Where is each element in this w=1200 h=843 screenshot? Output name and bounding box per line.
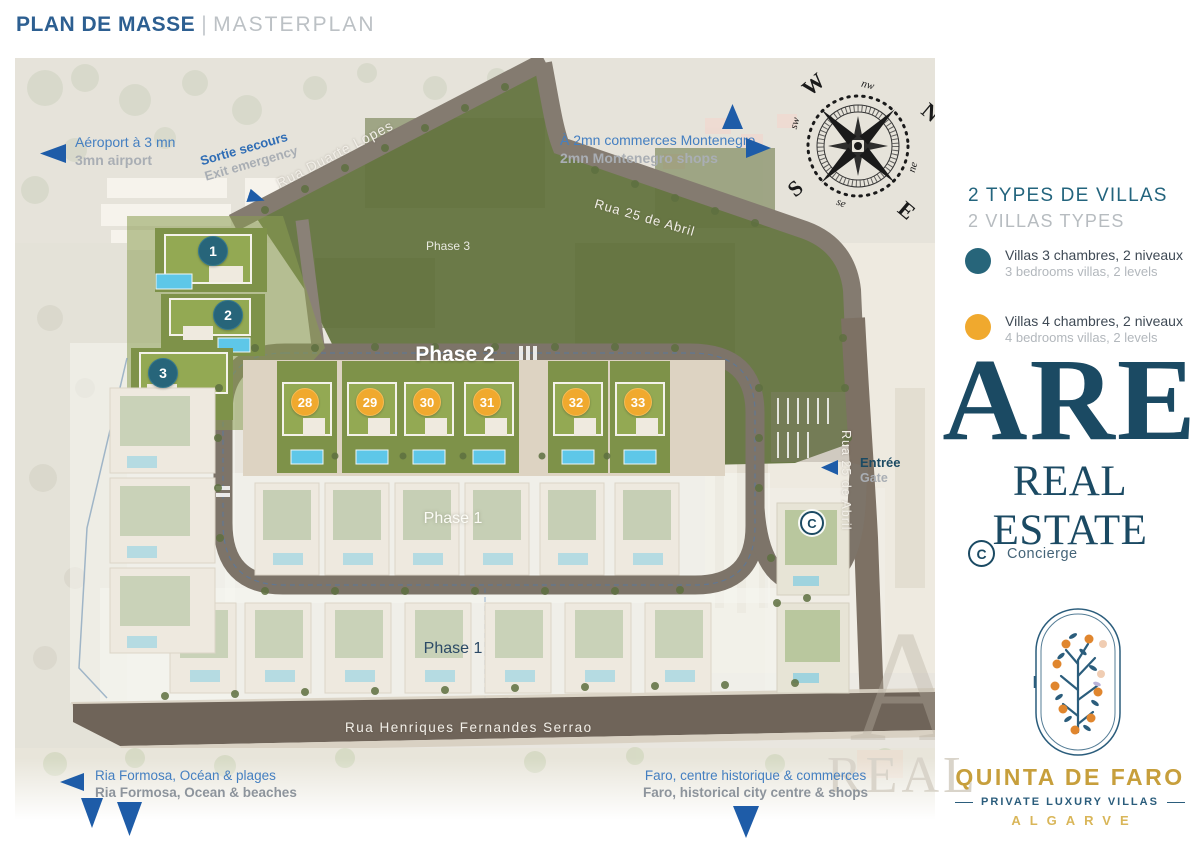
- villa-marker-3: 3: [148, 358, 178, 388]
- legend-4bed-fr: Villas 4 chambres, 2 niveaux: [1005, 312, 1183, 330]
- masterplan-map: A W N S E nw sw ne se Rua Duarte Lopes R…: [15, 58, 935, 820]
- faro-label-fr: Faro, centre historique & commerces: [643, 768, 868, 785]
- ria-label-fr: Ria Formosa, Océan & plages: [95, 768, 297, 785]
- concierge-circle-icon: C: [968, 540, 995, 567]
- villa-marker-33: 33: [624, 388, 652, 416]
- legend-sidebar: 2 TYPES DE VILLAS 2 VILLAS TYPES Villas …: [940, 0, 1200, 843]
- entrance-poi: Entrée Gate: [860, 455, 900, 487]
- site-plan-graphic: A W N S E nw sw ne se: [15, 58, 935, 820]
- faro-arrow-down-icon: [733, 806, 759, 838]
- teal-villa-dot-icon: [965, 248, 991, 274]
- entrance-label-fr: Entrée: [860, 455, 900, 471]
- tagline-text: PRIVATE LUXURY VILLAS: [981, 796, 1159, 808]
- villa-marker-28: 28: [291, 388, 319, 416]
- villa-marker-2: 2: [213, 300, 243, 330]
- phase1-upper-label: Phase 1: [413, 510, 493, 528]
- villa-types-title-fr: 2 TYPES DE VILLAS: [968, 185, 1168, 207]
- legend-3bed-fr: Villas 3 chambres, 2 niveaux: [1005, 246, 1183, 264]
- villa-marker-29: 29: [356, 388, 384, 416]
- villa-marker-1: 1: [198, 236, 228, 266]
- entrance-label-en: Gate: [860, 471, 900, 487]
- villa-marker-31: 31: [473, 388, 501, 416]
- faro-poi: Faro, centre historique & commerces Faro…: [643, 768, 868, 802]
- concierge-label: Concierge: [1007, 546, 1078, 562]
- villa-types-title-en: 2 VILLAS TYPES: [968, 211, 1125, 232]
- ria-label-en: Ria Formosa, Ocean & beaches: [95, 785, 297, 802]
- road-label-serrao: Rua Henriques Fernandes Serrao: [345, 720, 593, 735]
- phase2-label: Phase 2: [400, 343, 510, 367]
- title-separator: |: [195, 13, 213, 36]
- airport-label-fr: Aéroport à 3 mn: [75, 134, 175, 152]
- legend-item-3bed: Villas 3 chambres, 2 niveaux 3 bedrooms …: [965, 246, 1183, 281]
- concierge-map-marker: C: [800, 511, 824, 535]
- page-title-en: MASTERPLAN: [213, 13, 375, 36]
- are-acronym: ARE: [940, 346, 1200, 455]
- phase3-label: Phase 3: [413, 239, 483, 253]
- shops-label-fr: À 2mn commerces Montenegro: [560, 132, 755, 150]
- page-title-fr: PLAN DE MASSE: [16, 13, 195, 36]
- airport-poi: Aéroport à 3 mn 3mn airport: [75, 134, 175, 169]
- concierge-legend: C Concierge: [968, 540, 1078, 567]
- quinta-de-faro-tagline: PRIVATE LUXURY VILLAS: [940, 796, 1200, 808]
- faro-label-en: Faro, historical city centre & shops: [643, 785, 868, 802]
- are-brand-logo: ARE REAL ESTATE: [940, 346, 1200, 555]
- tagline-dash-right: [1167, 802, 1185, 803]
- villa-marker-30: 30: [413, 388, 441, 416]
- phase2-plots: [243, 360, 725, 476]
- villa-marker-32: 32: [562, 388, 590, 416]
- road-label-25-abril-side: Rua 25 de Abril: [839, 430, 853, 530]
- shops-poi: À 2mn commerces Montenegro 2mn Montenegr…: [560, 132, 755, 167]
- quinta-de-faro-name: QUINTA DE FARO: [940, 764, 1200, 791]
- phase1-lower-label: Phase 1: [413, 640, 493, 658]
- quinta-de-faro-emblem: [1033, 606, 1123, 758]
- legend-3bed-en: 3 bedrooms villas, 2 levels: [1005, 264, 1183, 281]
- airport-label-en: 3mn airport: [75, 152, 175, 170]
- page-header: PLAN DE MASSE|MASTERPLAN: [16, 13, 376, 37]
- shops-label-en: 2mn Montenegro shops: [560, 150, 755, 168]
- quinta-de-faro-region: ALGARVE: [940, 813, 1200, 828]
- ria-poi: Ria Formosa, Océan & plages Ria Formosa,…: [95, 768, 297, 802]
